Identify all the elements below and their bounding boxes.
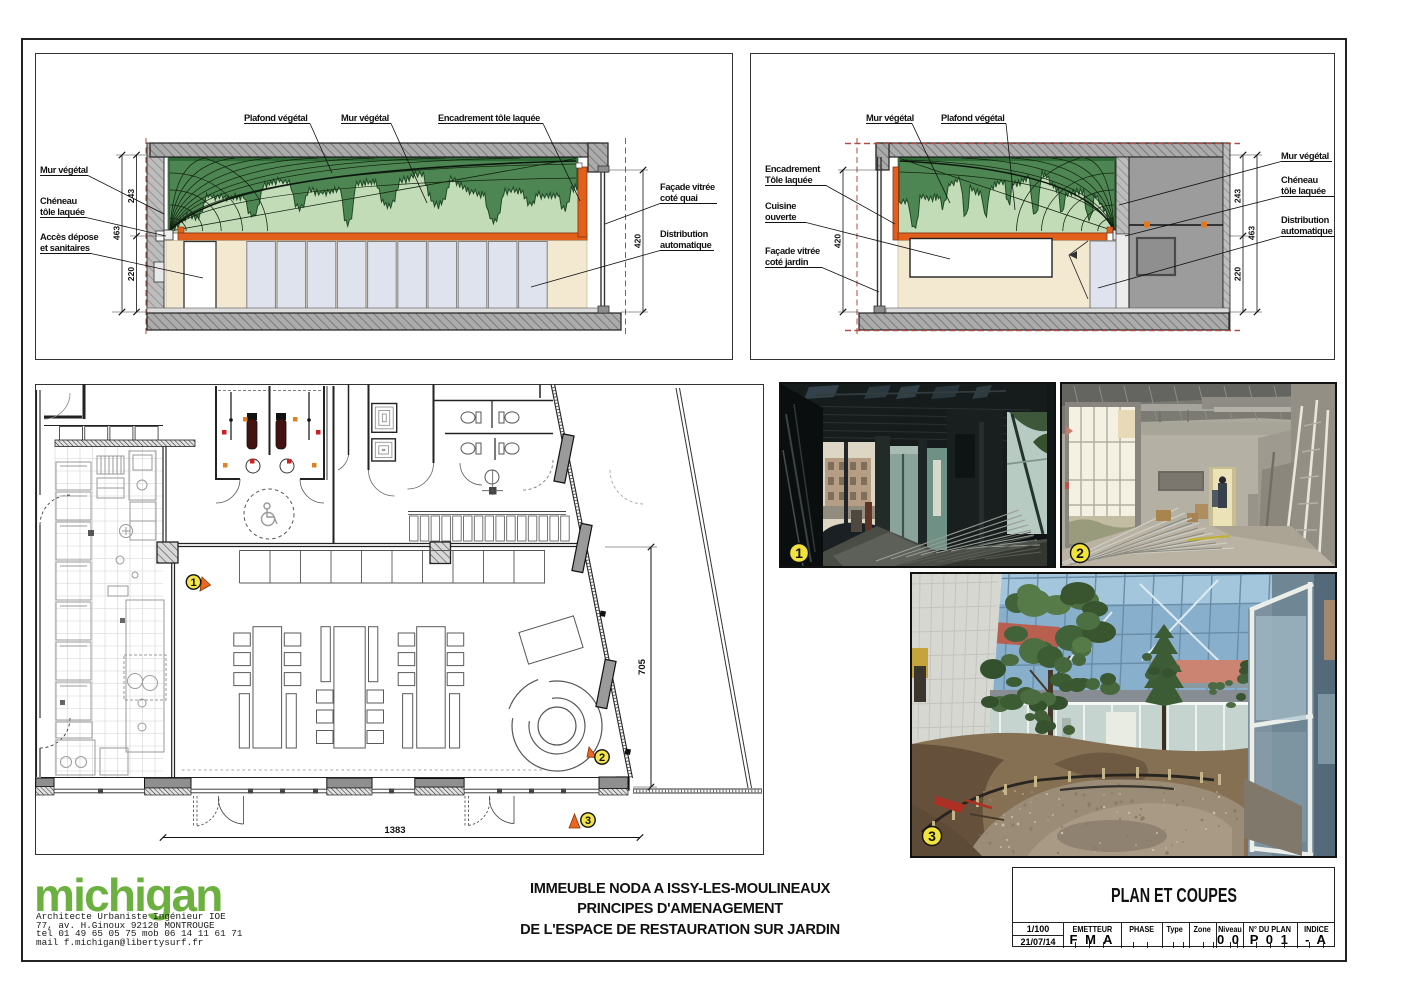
svg-text:Mur végétal: Mur végétal <box>1281 151 1329 161</box>
svg-text:Façade vitrée: Façade vitrée <box>765 246 820 256</box>
svg-text:220: 220 <box>126 267 136 281</box>
svg-text:Mur végétal: Mur végétal <box>40 165 88 175</box>
svg-text:automatique: automatique <box>660 240 712 250</box>
svg-text:Encadrement tôle laquée: Encadrement tôle laquée <box>438 113 540 123</box>
svg-text:et sanitaires: et sanitaires <box>40 243 90 253</box>
svg-text:1383: 1383 <box>384 825 405 836</box>
svg-text:420: 420 <box>633 234 643 248</box>
svg-text:Mur végétal: Mur végétal <box>341 113 389 123</box>
svg-text:coté quai: coté quai <box>660 193 698 203</box>
svg-text:Distribution: Distribution <box>1281 215 1330 225</box>
svg-text:Chéneau: Chéneau <box>1281 175 1318 185</box>
svg-text:Façade vitrée: Façade vitrée <box>660 182 715 192</box>
svg-text:3: 3 <box>928 828 936 844</box>
svg-text:tôle laquée: tôle laquée <box>40 207 85 217</box>
svg-text:463: 463 <box>112 226 122 240</box>
svg-text:2: 2 <box>1076 545 1084 561</box>
svg-text:1: 1 <box>190 577 196 589</box>
svg-text:Chéneau: Chéneau <box>40 196 77 206</box>
svg-text:243: 243 <box>1233 189 1243 203</box>
svg-text:Accès dépose: Accès dépose <box>40 232 99 242</box>
svg-text:automatique: automatique <box>1281 226 1333 236</box>
svg-text:3: 3 <box>585 815 591 827</box>
svg-text:Mur végétal: Mur végétal <box>866 113 914 123</box>
svg-text:ouverte: ouverte <box>765 212 796 222</box>
svg-text:Tôle laquée: Tôle laquée <box>765 175 812 185</box>
svg-text:coté jardin: coté jardin <box>765 257 809 267</box>
svg-text:Plafond végétal: Plafond végétal <box>244 113 307 123</box>
svg-text:Distribution: Distribution <box>660 229 709 239</box>
svg-text:tôle laquée: tôle laquée <box>1281 186 1326 196</box>
svg-text:463: 463 <box>1247 226 1257 240</box>
svg-text:1: 1 <box>795 545 803 561</box>
svg-text:420: 420 <box>833 234 843 248</box>
svg-text:220: 220 <box>1233 267 1243 281</box>
svg-text:Encadrement: Encadrement <box>765 164 820 174</box>
svg-text:Cuisine: Cuisine <box>765 201 796 211</box>
svg-text:2: 2 <box>599 752 605 764</box>
svg-text:Plafond végétal: Plafond végétal <box>941 113 1004 123</box>
svg-text:705: 705 <box>637 658 648 675</box>
